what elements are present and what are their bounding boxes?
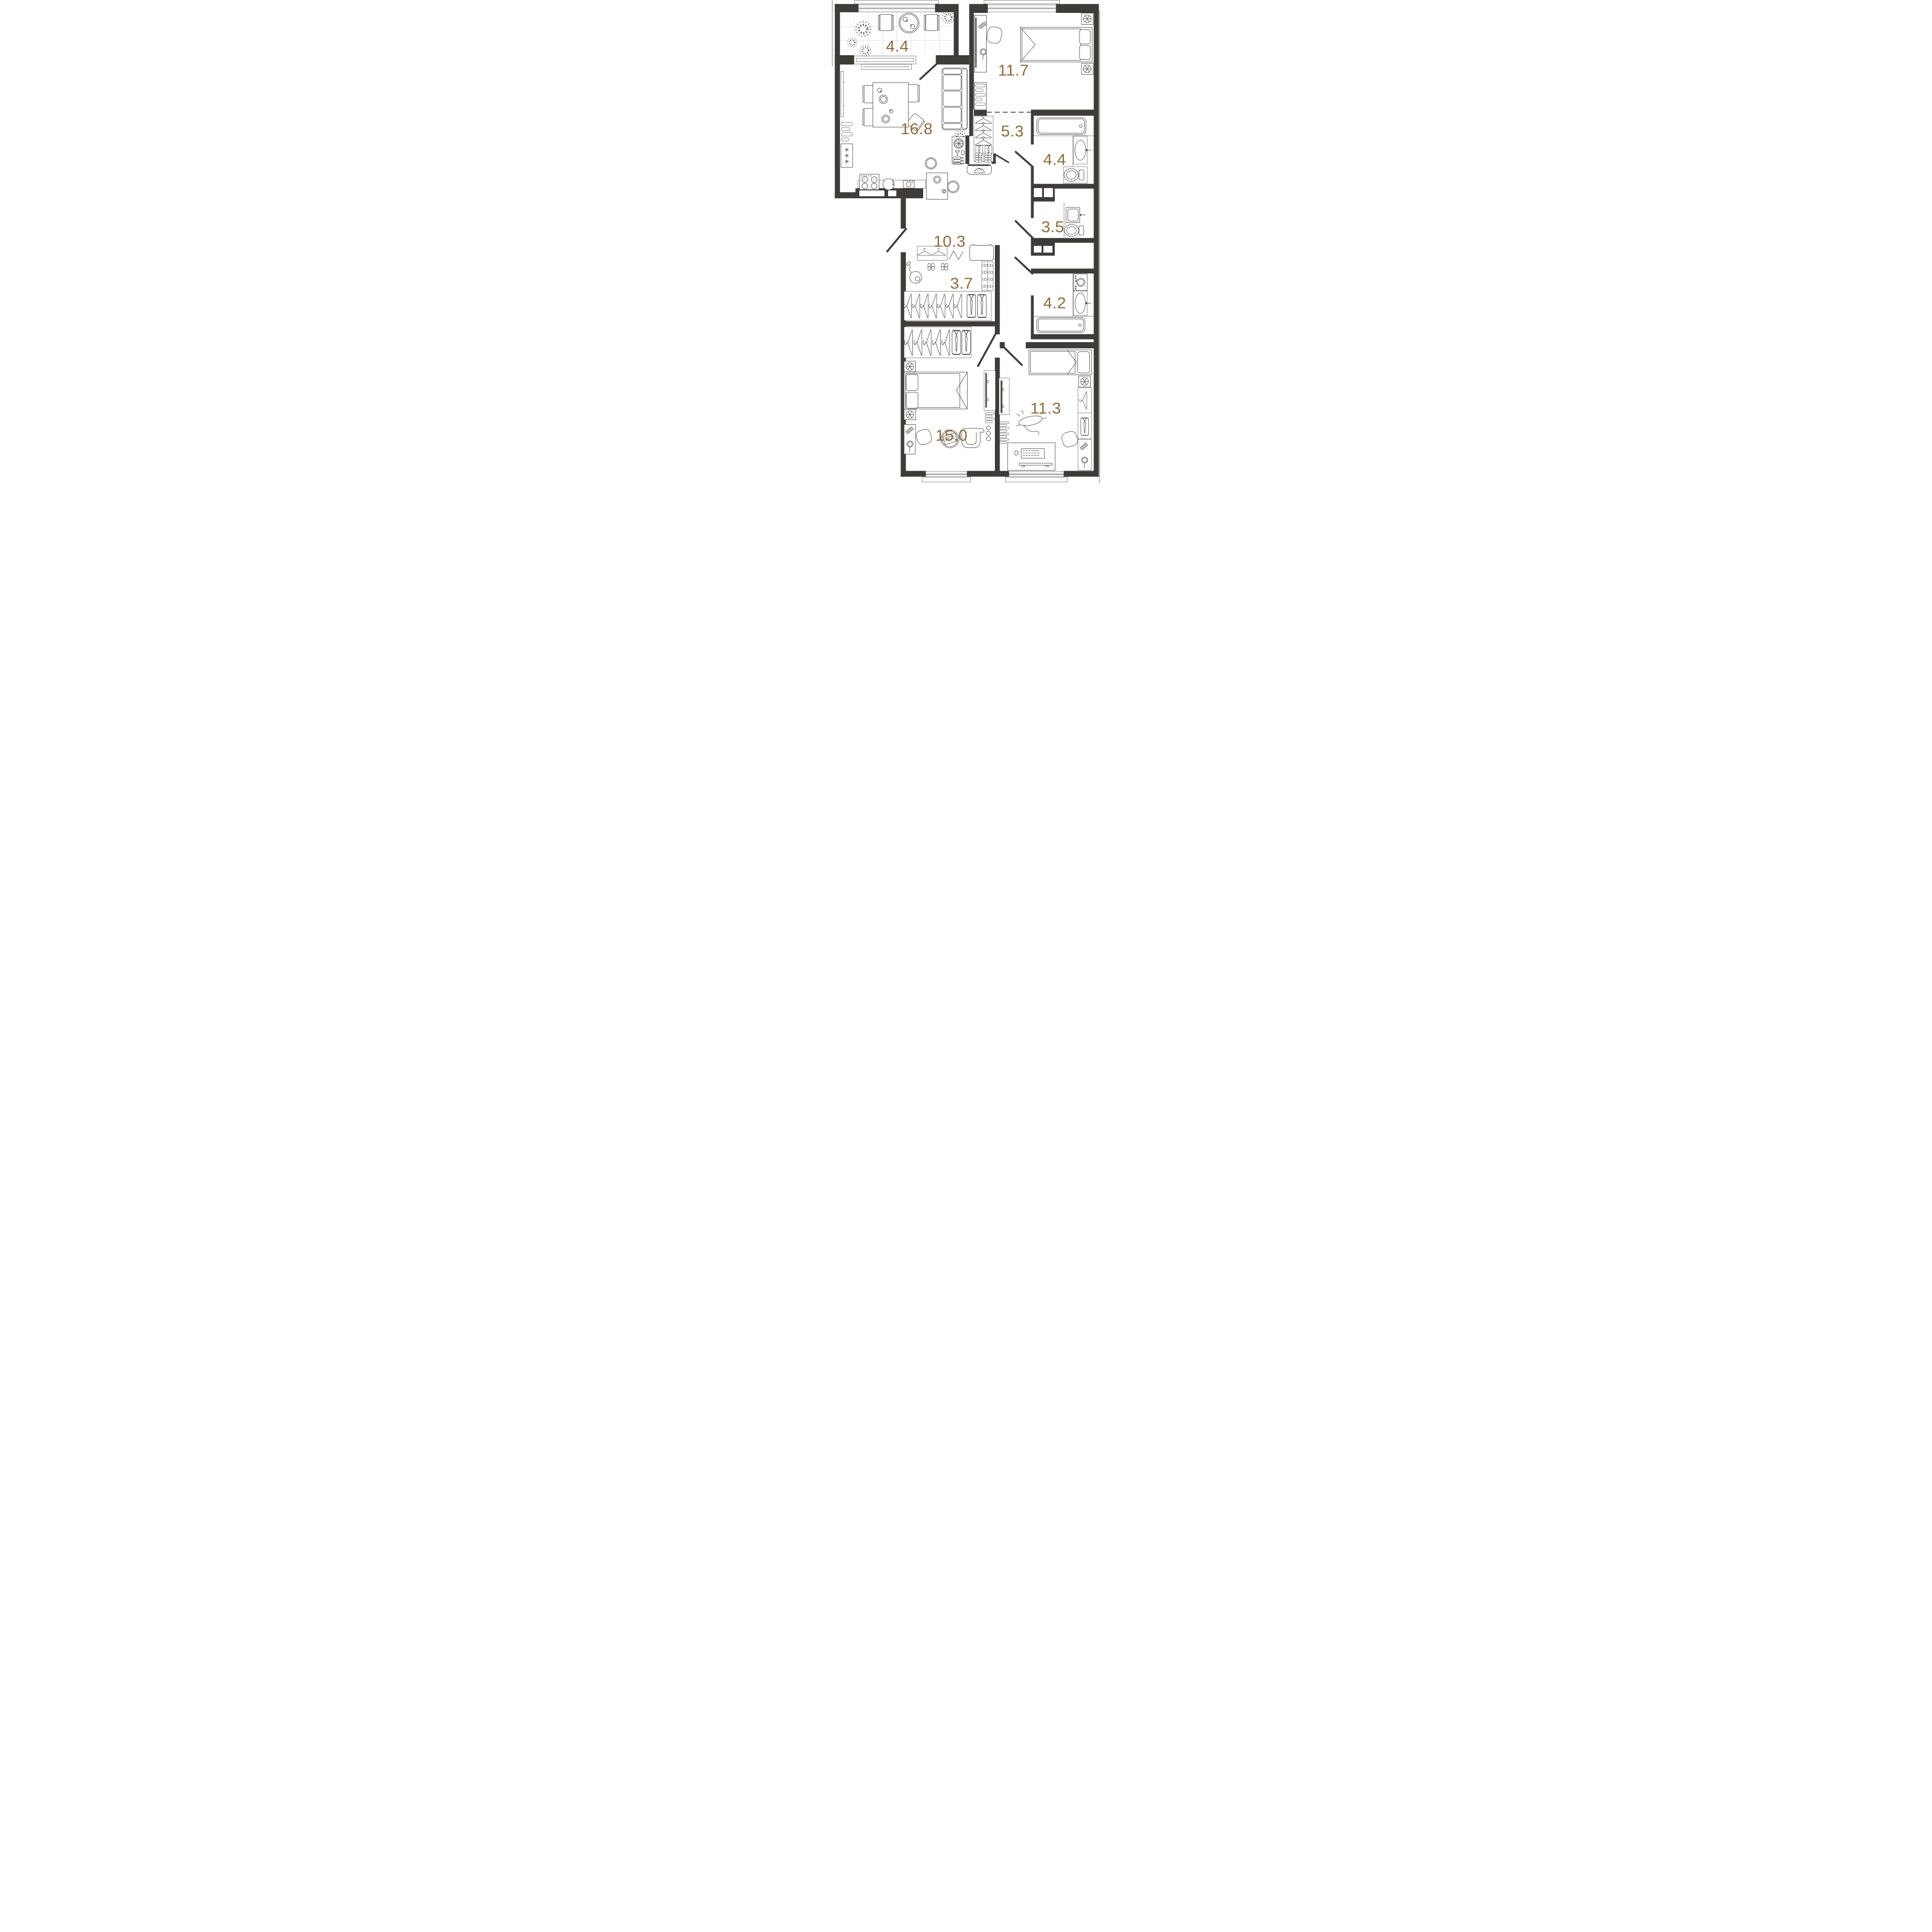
double-bed-icon (1021, 27, 1092, 62)
radiator-icon (1000, 422, 1009, 443)
tv-icon (999, 378, 1009, 415)
room-label-corridor: 10.3 (933, 232, 965, 250)
balcony-chair (924, 14, 939, 31)
room-label-walk-in-closet: 3.7 (950, 275, 973, 293)
nightstand-icon (1078, 376, 1090, 387)
stove-icon (860, 174, 879, 190)
vanity-icon (1078, 439, 1091, 470)
shirt-icon (962, 331, 971, 355)
tv-icon (841, 71, 845, 117)
chair-icon (915, 428, 933, 446)
nightstand-icon (1082, 63, 1093, 75)
sink-icon (1066, 207, 1086, 223)
room-label-bathroom-bottom: 4.2 (1043, 294, 1067, 312)
balcony-chair (878, 14, 893, 31)
shelf-icon (842, 122, 853, 141)
room-bathroom-middle (1064, 203, 1086, 238)
sink-icon (1073, 136, 1091, 164)
single-bed-icon (1029, 350, 1091, 375)
room-label-balcony: 4.4 (886, 37, 909, 55)
floor-plan: 4.4 11.7 16.8 5.3 4.4 3.5 10.3 3.7 4.2 1… (725, 0, 1208, 483)
sink-icon (883, 179, 894, 190)
shirt-icon (952, 331, 961, 355)
pillow-icon (1080, 45, 1090, 60)
sink-icon (1074, 291, 1091, 316)
stool-icon (947, 181, 959, 193)
bar-cabinet (952, 137, 965, 165)
keyboard-icon (1021, 449, 1044, 459)
sofa-icon (942, 68, 968, 130)
slippers-icon (928, 263, 947, 270)
chair-icon (986, 26, 1003, 44)
toilet-icon (1064, 167, 1087, 183)
zigzag-icon (949, 251, 963, 260)
kitchen-counter (858, 174, 926, 190)
hallway-door-leaf (996, 155, 1008, 163)
bathroom-bottom-door-leaf (1016, 258, 1033, 274)
desk-icon (1008, 443, 1055, 471)
bathtub-icon (1034, 118, 1093, 136)
double-bed-icon (904, 372, 968, 409)
vacuum-icon (906, 262, 922, 283)
room-label-bedroom-left: 15.0 (936, 426, 968, 444)
dressing-table-icon (904, 425, 915, 455)
tv-stand-icon (984, 371, 995, 411)
washing-machine-icon (1074, 274, 1088, 291)
nightstand-icon (904, 409, 916, 420)
room-label-bedroom-top: 11.7 (998, 61, 1029, 79)
room-label-bathroom-middle: 3.5 (1041, 218, 1065, 236)
slipper-rack-icon (982, 262, 993, 291)
room-walk-in-closet (904, 245, 993, 321)
room-label-kitchen-living: 16.8 (900, 120, 932, 138)
shoe-bench-icon (970, 245, 993, 261)
dresser-icon (975, 15, 987, 73)
stool-icon (925, 158, 937, 169)
plant-icon (848, 38, 857, 47)
radiator-icon (985, 412, 994, 441)
bedroom-right-door-leaf (1005, 348, 1022, 365)
shirt-icon (978, 295, 987, 317)
hanger-rail (904, 292, 991, 321)
tv-icon (986, 373, 987, 408)
coffee-machine-icon (903, 181, 914, 188)
balcony-table (899, 13, 919, 33)
tv-icon (975, 18, 977, 68)
nightstand-icon (1082, 13, 1093, 25)
bookshelf-icon (975, 83, 987, 110)
entrance-door-leaf (888, 229, 906, 251)
pillow-icon (906, 392, 918, 408)
fridge-icon (841, 144, 853, 168)
room-label-hallway: 5.3 (1001, 122, 1024, 140)
kitchen-island (925, 158, 959, 200)
chair-icon (1060, 430, 1079, 448)
closet-rail (904, 327, 971, 358)
pillow-icon (1080, 30, 1090, 44)
plant-icon (860, 45, 871, 56)
entry-bench-icon (967, 165, 992, 174)
nightstand-icon (904, 361, 916, 372)
balcony-door-leaf (921, 65, 937, 79)
shirt-icon (1081, 418, 1089, 436)
room-label-bathroom-top: 4.4 (1043, 151, 1067, 169)
shirt-icon (967, 295, 976, 317)
bathtub-icon (1037, 318, 1085, 333)
room-label-bedroom-right: 11.3 (1030, 399, 1061, 417)
toilet-icon (1065, 224, 1084, 236)
bathroom-top-door-leaf (1016, 152, 1033, 167)
mouse-icon (1015, 450, 1018, 455)
wardrobe-icon (1078, 388, 1091, 439)
pillow-icon (1078, 352, 1090, 373)
monitor-icon (1019, 463, 1052, 465)
floor-plan-sheet: 4.4 11.7 16.8 5.3 4.4 3.5 10.3 3.7 4.2 1… (725, 0, 1208, 483)
bedroom-left-door-leaf (978, 335, 995, 366)
bathroom-middle-door-leaf (1016, 221, 1033, 238)
plant-icon (943, 12, 955, 24)
pillow-icon (906, 375, 918, 391)
room-bedroom-top (975, 13, 1093, 110)
